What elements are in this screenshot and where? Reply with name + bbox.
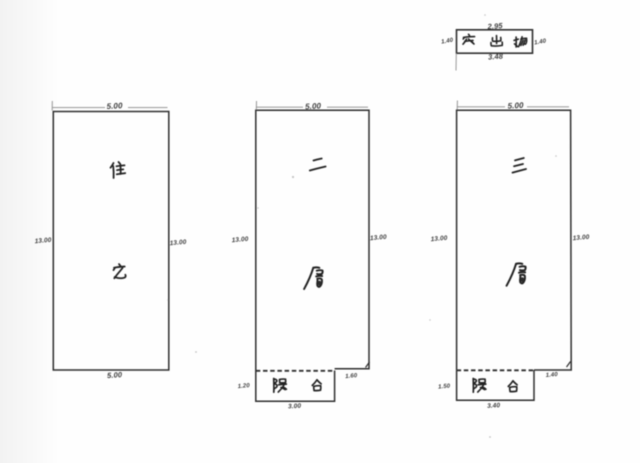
svg-text:13.00: 13.00 (572, 234, 590, 242)
svg-text:3.00: 3.00 (288, 403, 302, 411)
svg-text:13.00: 13.00 (430, 235, 448, 243)
svg-text:13.00: 13.00 (169, 239, 187, 247)
svg-text:1.20: 1.20 (237, 383, 250, 390)
svg-text:1.40: 1.40 (441, 38, 454, 46)
svg-text:3.40: 3.40 (487, 402, 501, 410)
svg-text:5.00: 5.00 (106, 101, 123, 111)
svg-text:1.40: 1.40 (545, 372, 558, 379)
svg-text:13.00: 13.00 (231, 236, 249, 244)
svg-text:1.60: 1.60 (345, 373, 358, 380)
svg-text:2.95: 2.95 (486, 21, 503, 31)
svg-text:1.50: 1.50 (438, 384, 451, 391)
svg-text:5.00: 5.00 (107, 370, 123, 380)
svg-text:3.48: 3.48 (488, 52, 504, 62)
svg-text:13.00: 13.00 (34, 237, 52, 245)
svg-text:13.00: 13.00 (370, 234, 388, 242)
svg-text:5.00: 5.00 (507, 101, 524, 111)
svg-text:1.40: 1.40 (534, 38, 547, 46)
svg-text:5.00: 5.00 (305, 101, 322, 111)
